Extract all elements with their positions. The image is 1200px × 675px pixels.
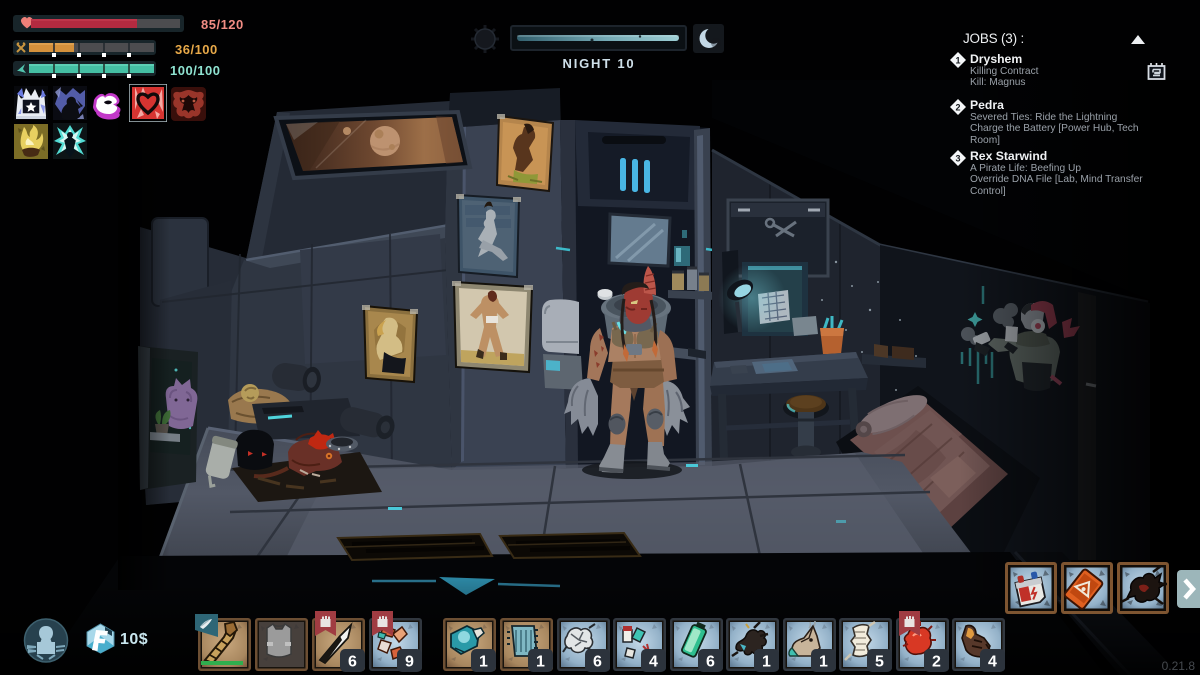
svg-text:6: 6 <box>593 654 602 671</box>
svg-text:2: 2 <box>955 103 960 113</box>
svg-text:9: 9 <box>405 654 414 671</box>
svg-text:1: 1 <box>955 56 960 66</box>
svg-text:6: 6 <box>706 654 715 671</box>
svg-text:4: 4 <box>988 654 997 671</box>
svg-text:5: 5 <box>875 654 884 671</box>
svg-text:1: 1 <box>762 654 771 671</box>
svg-text:3: 3 <box>955 154 960 164</box>
svg-text:1: 1 <box>819 654 828 671</box>
svg-text:1: 1 <box>536 654 545 671</box>
svg-text:4: 4 <box>649 654 658 671</box>
svg-text:1: 1 <box>479 654 488 671</box>
svg-text:2: 2 <box>932 654 941 671</box>
svg-text:6: 6 <box>348 654 357 671</box>
